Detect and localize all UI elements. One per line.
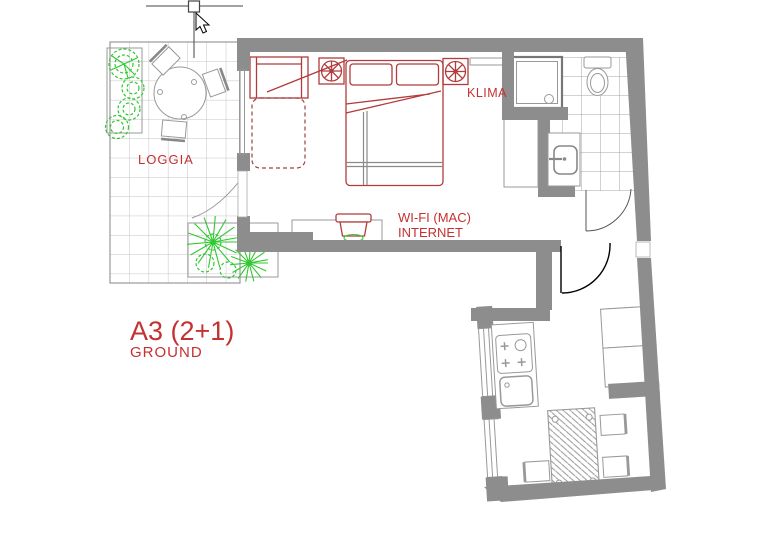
double-bed: [346, 61, 443, 186]
bench-seat: [601, 307, 645, 348]
label-loggia: LOGGIA: [138, 152, 194, 167]
label-unit-name: A3 (2+1): [130, 316, 234, 346]
kitchen-window: [483, 419, 503, 478]
top-wall: [237, 38, 643, 52]
label-internet: INTERNET: [398, 225, 463, 240]
entrance-doorway: [636, 242, 650, 257]
cabinet: [504, 117, 538, 187]
grip-handle-icon: [189, 1, 200, 12]
pillow: [397, 64, 439, 85]
hallway-wall: [536, 250, 552, 310]
balcony-doorway: [238, 171, 247, 217]
kitchen: [475, 296, 666, 502]
floor-plan-svg: LOGGIA KLIMA WI-FI (MAC) INTERNET A3 (2+…: [0, 0, 766, 538]
dining-chair: [603, 456, 629, 477]
label-klima: KLIMA: [467, 86, 507, 100]
patio-table: [154, 67, 206, 120]
sofa-bed-extension: [252, 98, 305, 168]
floor-plan: LOGGIA KLIMA WI-FI (MAC) INTERNET A3 (2+…: [0, 0, 766, 538]
dining-chair: [600, 414, 626, 435]
sink-vanity: [548, 133, 580, 186]
curtain-line: [267, 60, 347, 92]
dining-chair: [524, 461, 550, 482]
label-wifi: WI-FI (MAC): [398, 210, 471, 225]
shelf: [470, 58, 503, 65]
ac-fan-icon: [443, 59, 468, 85]
label-floor-level: GROUND: [130, 344, 203, 361]
plant-pot: [336, 214, 371, 242]
entrance-door: [561, 243, 610, 293]
shower: [512, 57, 562, 108]
ac-fan-icon: [319, 58, 344, 84]
cursor-arrow-icon: [196, 13, 209, 33]
bathroom-door: [586, 189, 631, 231]
bench-seat: [603, 346, 647, 387]
stove: [495, 334, 532, 374]
sofa-bed: [250, 57, 308, 168]
bedroom-bottom-wall: [237, 240, 561, 252]
loggia-window: [238, 70, 247, 217]
kitchen-sink: [500, 376, 534, 407]
kitchen-top-wall: [471, 308, 550, 321]
pillow: [350, 64, 392, 85]
dining-table: [548, 408, 600, 493]
